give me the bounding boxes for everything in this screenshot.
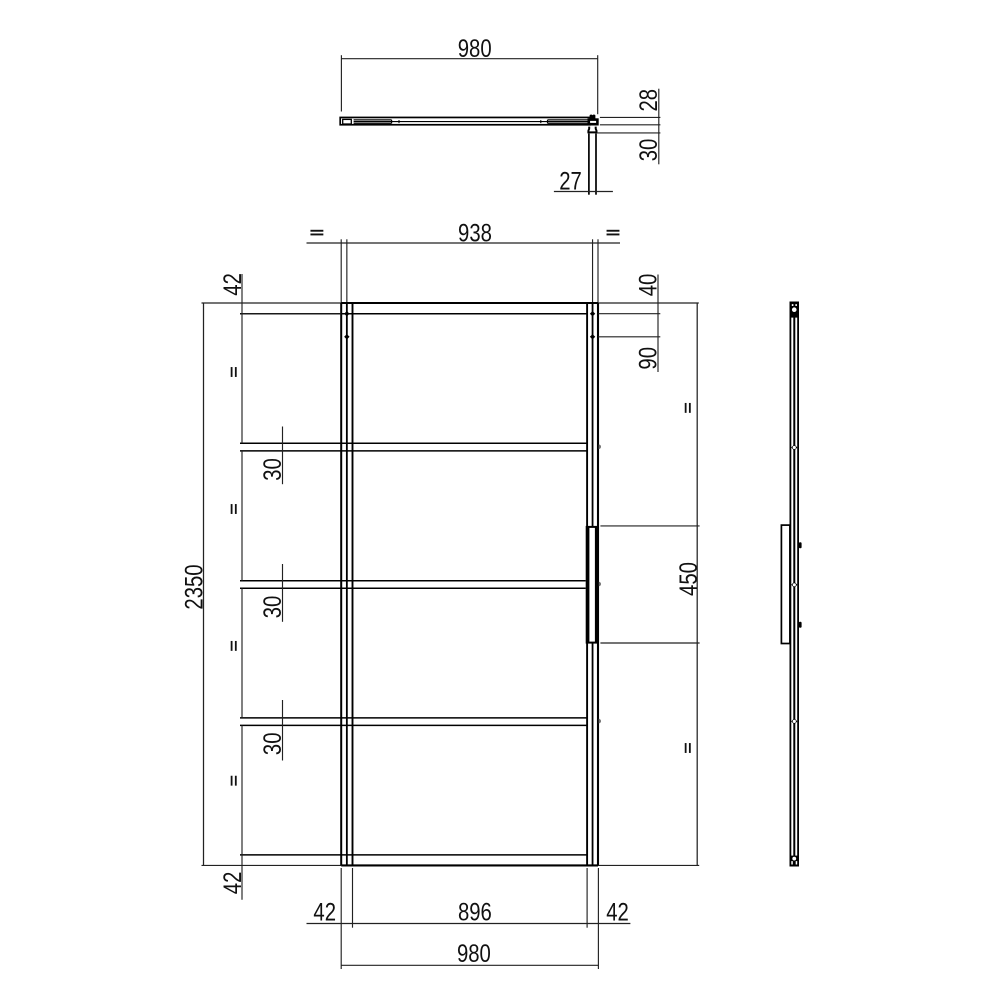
svg-text:42: 42 [219, 273, 247, 296]
svg-text:42: 42 [219, 872, 247, 895]
svg-text:27: 27 [559, 168, 582, 196]
svg-text:30: 30 [635, 139, 663, 162]
svg-text:30: 30 [259, 596, 287, 619]
svg-text:896: 896 [458, 898, 492, 926]
svg-text:938: 938 [458, 219, 492, 247]
svg-text:980: 980 [458, 35, 492, 63]
svg-text:40: 40 [635, 274, 663, 297]
svg-text:980: 980 [457, 940, 491, 968]
svg-text:30: 30 [259, 733, 287, 756]
svg-text:90: 90 [635, 347, 663, 370]
svg-text:2350: 2350 [181, 564, 209, 609]
svg-text:28: 28 [635, 89, 663, 112]
svg-text:42: 42 [313, 898, 336, 926]
svg-text:30: 30 [259, 458, 287, 481]
svg-text:42: 42 [606, 898, 629, 926]
svg-text:450: 450 [675, 562, 703, 596]
